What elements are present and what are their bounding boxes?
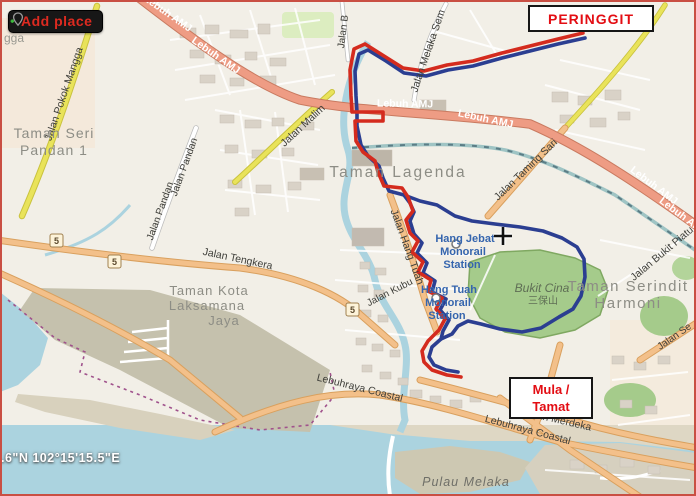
label-taman-serindit: Harmoni — [594, 295, 661, 312]
label-taman-seri-pandan: Taman Seri — [14, 125, 95, 141]
label-taman-seri-pandan: Pandan 1 — [20, 142, 88, 158]
crosshair-cursor — [494, 227, 512, 245]
label-hang-jebat-station: Monorail — [440, 246, 486, 258]
label-taman-kota-laksamana: Laksamana — [169, 298, 245, 313]
road-label-lebuh-amj: Lebuh AMJ — [457, 107, 515, 130]
road-label-jalan-melaka-sem: Jalan Melaka Sem — [408, 8, 448, 94]
label-taman-kota-laksamana: Taman Kota — [169, 283, 248, 298]
label-hang-jebat-station: Station — [443, 259, 481, 271]
add-place-label: Add place — [21, 13, 92, 29]
road-label-jalan-taming-sari: Jalan Taming Sari — [492, 137, 560, 203]
label-bukit-cina: Bukit Cina — [515, 281, 570, 295]
label-taman-kota-laksamana: Jaya — [208, 313, 239, 328]
label-taman-lagenda: Taman Lagenda — [329, 164, 466, 181]
label-bukit-cina-cjk: 三保山 — [528, 294, 558, 307]
route-start-marker-label: Mula / Tamat — [509, 377, 593, 419]
route-shield-5: 5 — [112, 257, 117, 267]
route-shield-5: 5 — [54, 236, 59, 246]
map-canvas[interactable]: 5 5 5 Lebuh AMJ Lebuh AMJ Lebuh AMJ Lebu… — [0, 0, 696, 496]
route-start-text-line1: Mula / — [533, 381, 570, 398]
label-hang-tuah-station: Monorail — [425, 297, 471, 309]
route-shield-5: 5 — [350, 305, 355, 315]
add-place-button[interactable]: Add place — [8, 10, 103, 33]
route-start-text-line2: Tamat — [532, 398, 569, 415]
label-taman-serindit: Taman Serindit — [567, 278, 688, 295]
label-hang-tuah-station: Station — [428, 310, 466, 322]
label-hang-tuah-station: Hang Tuah — [421, 284, 477, 296]
road-label-jalan-b: Jalan B — [336, 14, 351, 49]
road-label-lebuh-amj: Lebuh AMJ — [141, 0, 194, 35]
label-pulau-melaka: Pulau Melaka — [422, 475, 510, 489]
coordinates-readout: .6"N 102°15'15.5"E — [1, 451, 120, 465]
label-mangga-fragment: gga — [4, 31, 24, 45]
road-label-jalan-pandan: Jalan Pandan — [145, 181, 176, 242]
label-hang-jebat-station: Hang Jebat — [435, 233, 495, 245]
route-end-text: PERINGGIT — [548, 11, 634, 27]
route-end-marker-label: PERINGGIT — [528, 5, 654, 32]
route-return-line — [355, 38, 585, 372]
road-label-jalan-malim: Jalan Malim — [278, 102, 327, 149]
road-label-lebuh-amj: Lebuh AMJ — [377, 98, 434, 111]
